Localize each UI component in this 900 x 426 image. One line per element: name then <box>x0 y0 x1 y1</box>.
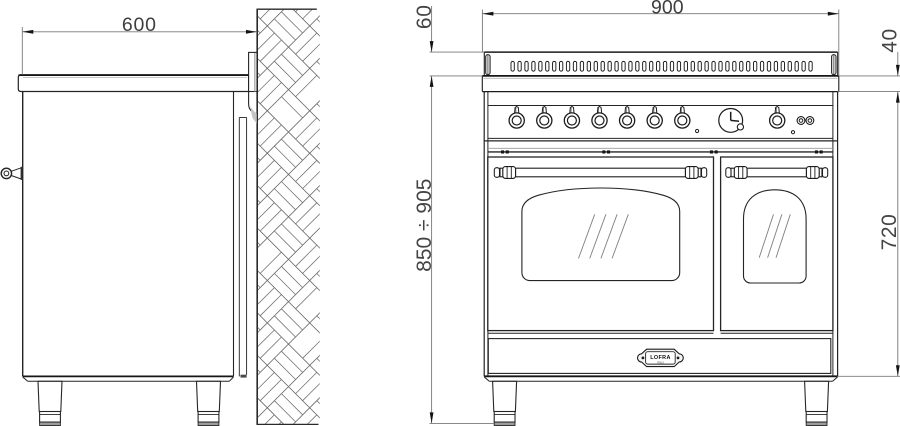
svg-text:720: 720 <box>878 214 900 251</box>
svg-text:60: 60 <box>413 5 436 30</box>
svg-text:900: 900 <box>651 0 684 19</box>
svg-text:850 ÷ 905: 850 ÷ 905 <box>413 179 436 272</box>
svg-text:ITALY: ITALY <box>657 360 664 364</box>
svg-text:40: 40 <box>878 28 900 53</box>
svg-text:600: 600 <box>122 14 157 36</box>
